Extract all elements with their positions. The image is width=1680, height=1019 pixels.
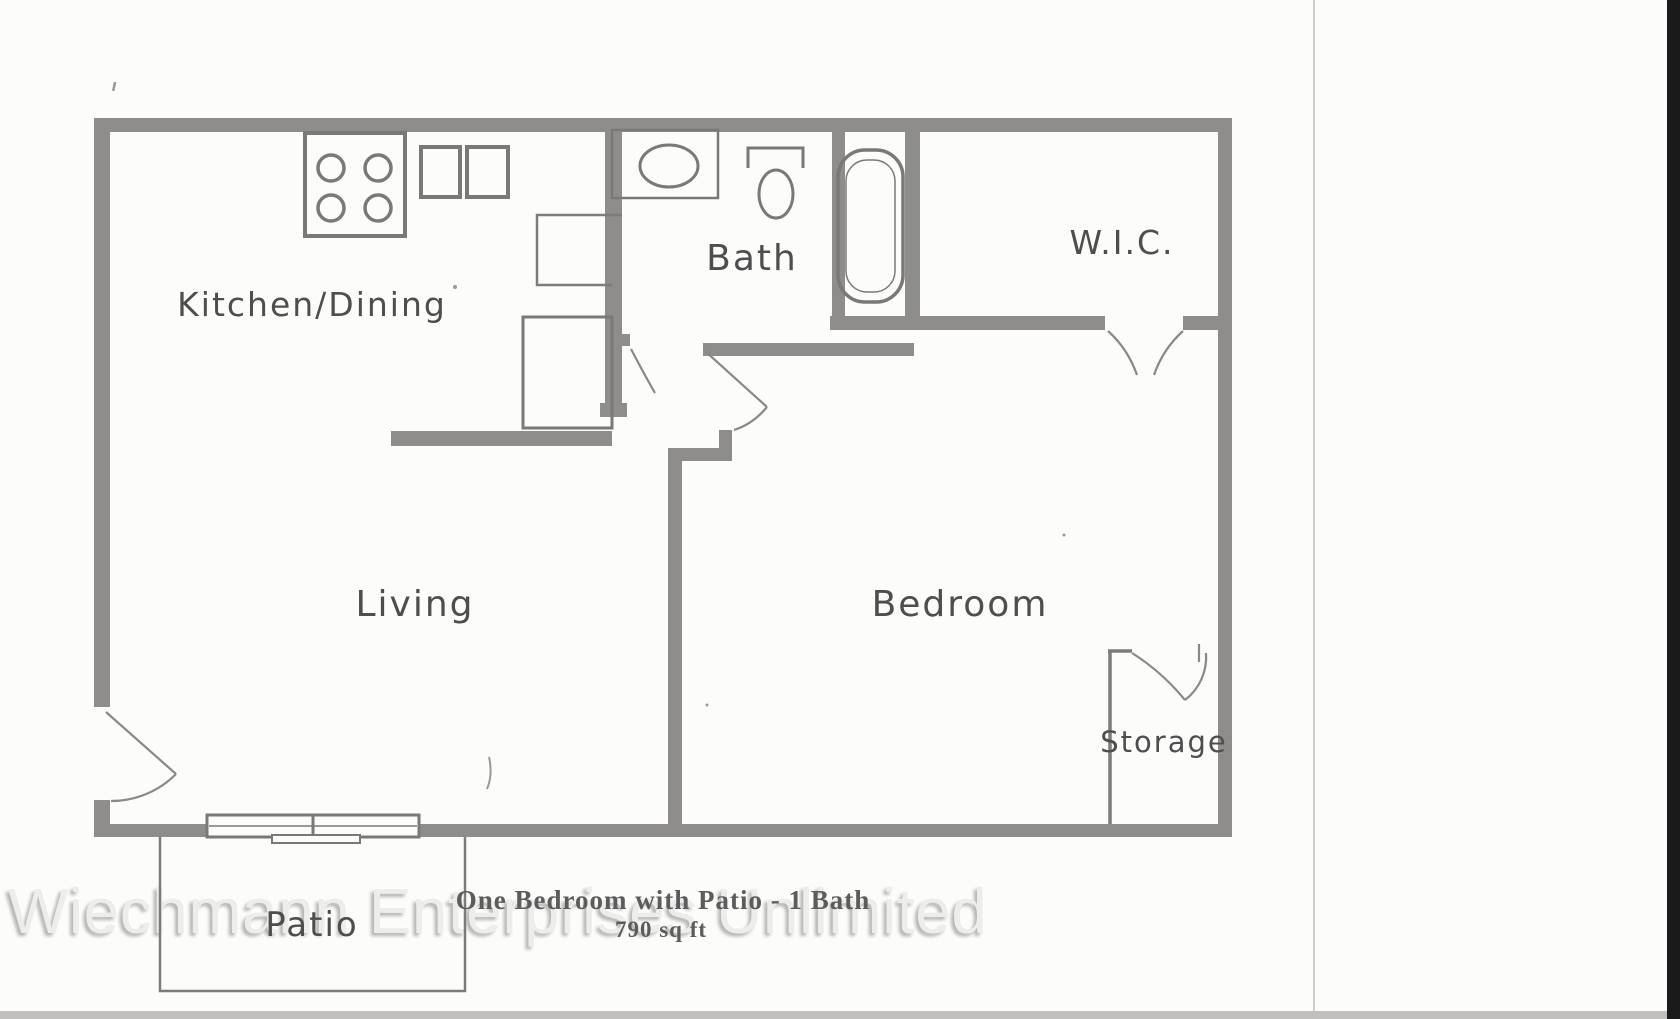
walls [94,118,1232,837]
wall-bedroom-left [668,448,682,824]
burner-icon [365,195,391,221]
burner-icon [365,155,391,181]
scan-page-edge [1313,0,1315,1019]
wall-kitchen-peninsula [391,431,612,446]
wic-door-arcs [1108,331,1183,375]
wall-wic-stub [1183,316,1232,330]
bathtub-icon [838,150,903,302]
wall-left [94,118,110,707]
room-label-bedroom: Bedroom [872,584,1049,625]
room-label-living: Living [355,584,474,625]
wall-wic-west [905,118,920,330]
room-label-patio: Patio [265,905,358,945]
caption-title: One Bedroom with Patio - 1 Bath [456,885,871,915]
bath-sink-icon [612,130,718,198]
toilet-icon [748,148,803,218]
burner-icon [318,195,344,221]
entry-door-arc [106,712,176,801]
wall-bedroom-door-stub [719,430,732,461]
storage-door-arc [1132,644,1206,700]
scanner-bottom-strip [0,1011,1667,1019]
wall-divider-notch [615,334,630,346]
scanned-floor-plan-page: Wiechmann Enterprises Unlimited [0,0,1680,1019]
fixtures [207,130,903,843]
wall-bath-south [703,343,914,356]
kitchen-sink-icon [421,147,508,197]
burner-icon [318,155,344,181]
room-label-bath: Bath [706,238,798,279]
room-label-storage: Storage [1100,725,1227,759]
bath-door-arc [631,349,655,393]
sliding-door [207,815,419,843]
scanner-edge-strip [1667,0,1680,1019]
room-label-wic: W.I.C. [1069,223,1174,262]
caption-area: 790 sq ft [615,917,707,942]
room-label-kitchen-dining: Kitchen/Dining [177,285,447,324]
wall-bedroom-top [905,316,1105,330]
floor-plan-drawing: Kitchen/Dining Bath W.I.C. Living Bedroo… [0,0,1680,1019]
stove-icon [305,133,405,236]
refrigerator-icon [523,317,612,428]
bedroom-door-arc [705,351,767,430]
door-swings [106,331,1206,801]
